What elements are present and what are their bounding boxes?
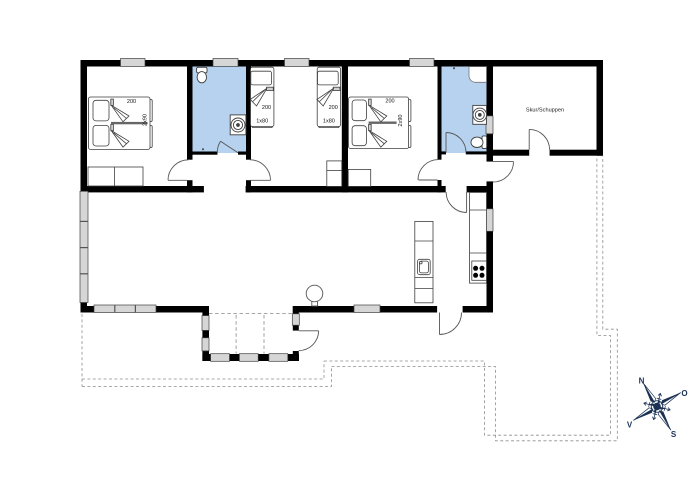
svg-text:200: 200 — [329, 105, 338, 111]
svg-text:200: 200 — [385, 98, 394, 104]
svg-text:N: N — [639, 377, 645, 386]
svg-text:S: S — [671, 430, 677, 439]
svg-text:1x80: 1x80 — [323, 119, 335, 125]
svg-text:200: 200 — [127, 99, 136, 105]
svg-text:200: 200 — [262, 105, 271, 111]
svg-text:2x90: 2x90 — [398, 115, 404, 127]
svg-text:O: O — [681, 389, 687, 398]
svg-text:1x80: 1x80 — [256, 119, 268, 125]
svg-text:2x90: 2x90 — [143, 114, 149, 126]
svg-text:Skur/Schuppen: Skur/Schuppen — [526, 107, 564, 113]
svg-text:V: V — [627, 421, 633, 430]
